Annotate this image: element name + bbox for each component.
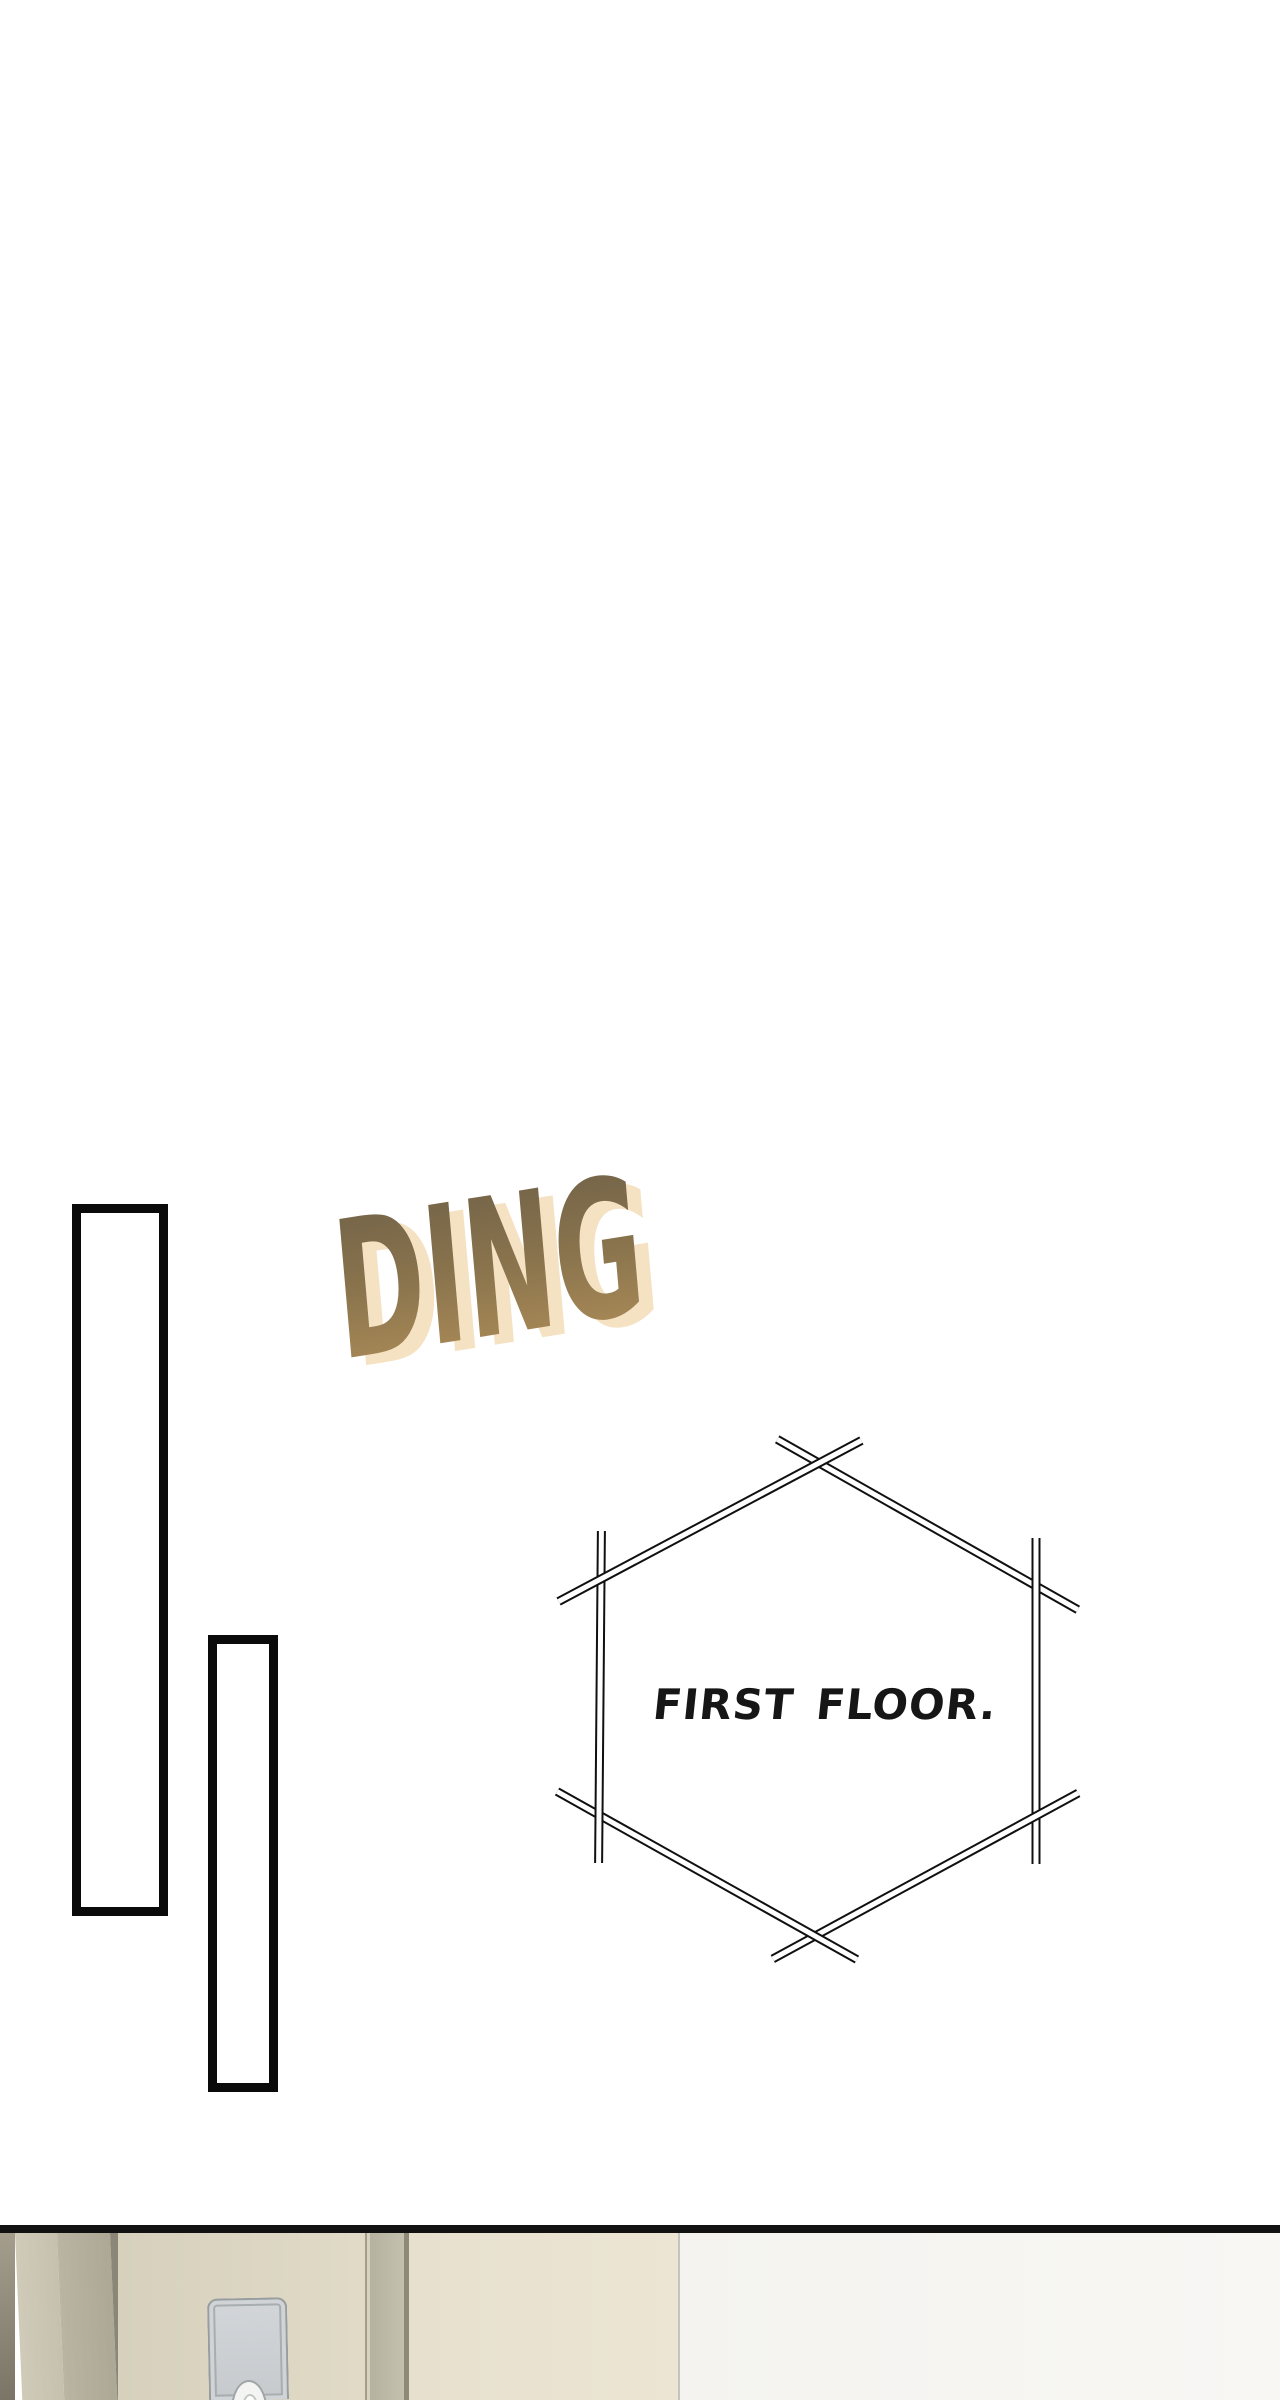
panel-rect-tall xyxy=(72,1204,168,1916)
elevator-door-right xyxy=(409,2233,678,2400)
door-gap-face xyxy=(370,2233,404,2400)
elevator-scene xyxy=(0,2233,1280,2400)
frame-shaded-face xyxy=(57,2233,117,2400)
door-lock-plate xyxy=(207,2297,289,2400)
bottom-panel xyxy=(0,2225,1280,2400)
elevator-door-frame xyxy=(15,2233,125,2400)
speech-bubble-text: FIRST FLOOR. xyxy=(587,1681,1062,1729)
keyhole-slot xyxy=(242,2394,259,2400)
hexagon-bar-top-left xyxy=(559,1441,862,1602)
panel-rect-short xyxy=(208,1635,278,2092)
frame-highlight-face xyxy=(15,2233,64,2400)
comic-page: DING DING xyxy=(0,0,1280,2400)
panel-top-border xyxy=(0,2225,1280,2233)
ding-sfx: DING DING xyxy=(330,1090,760,1430)
right-wall xyxy=(680,2233,1280,2400)
keyhole-oval xyxy=(231,2380,268,2400)
wall-corner-edge xyxy=(0,2233,15,2400)
